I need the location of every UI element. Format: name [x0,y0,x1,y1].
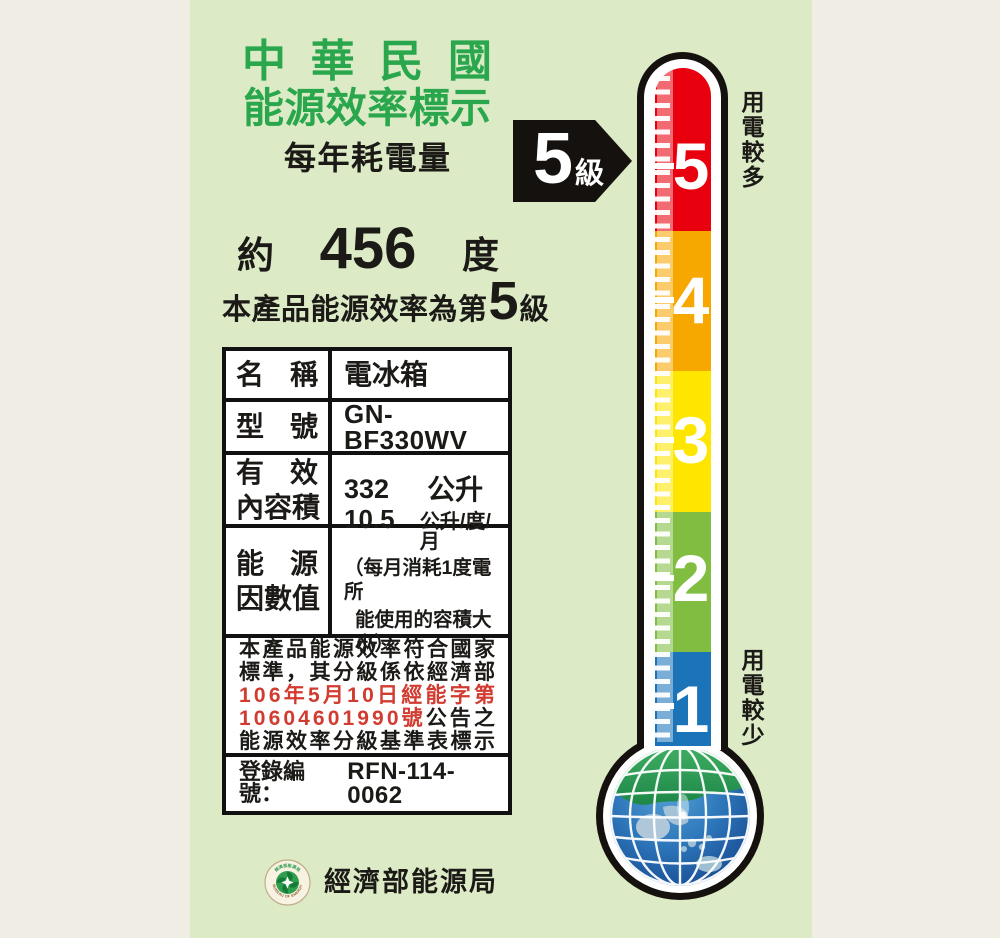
table-row-model: 型號 GN-BF330WV [226,398,508,451]
bureau-of-energy-seal-icon: 經濟部能源局 BUREAU OF ENERGY [264,859,311,906]
energy-factor-note-line1: （每月消耗1度電所 [344,556,508,604]
grade-arrow-number: 5 [533,120,573,198]
row-name-label-cell: 名稱 [226,351,332,398]
row-model-label-cell: 型號 [226,402,332,451]
consumption-value: 456 [320,220,417,278]
row-model-label: 型號 [236,409,318,444]
energy-factor-line: 10.5 公升/度/月 [344,506,508,552]
registration-label: 登錄編號： [239,761,347,805]
row-factor-label-line2: 因數值 [236,581,318,616]
energy-efficiency-label: 中華民國 能源效率標示 每年耗電量 約 456 度 本產品能源效率為第 5 級 … [0,0,1000,938]
notice-line-5: 能源效率分級基準表標示 [239,730,495,753]
table-row-name: 名稱 電冰箱 [226,351,508,398]
label-title-line2: 能源效率標示 [243,88,491,129]
annual-consumption-value-row: 約 456 度 [237,220,499,278]
row-name-value-cell: 電冰箱 [332,351,508,398]
volume-unit: 公升 [427,476,483,504]
table-row-notice: 本產品能源效率符合國家 標準，其分級係依經濟部 106年5月10日經能字第 10… [226,634,508,753]
product-name: 電冰箱 [344,361,428,389]
grade-statement-before: 本產品能源效率為第 [222,296,488,325]
agency-name: 經濟部能源局 [324,869,498,896]
row-factor-label-cell: 能源 因數值 [226,528,332,634]
energy-factor-unit: 公升/度/月 [420,512,508,552]
consumption-prefix: 約 [237,237,274,274]
label-title-line1: 中華民國 [242,40,492,84]
grade-number-3: 3 [664,407,718,473]
grade-arrow-unit: 級 [575,160,604,189]
annual-consumption-heading: 每年耗電量 [284,142,450,174]
registration-cell: 登錄編號： RFN-114-0062 [226,760,508,808]
grade-statement: 本產品能源效率為第 5 級 [222,274,549,328]
row-volume-label-line2: 內容積 [236,490,318,525]
consumption-unit: 度 [462,237,499,274]
notice-line-3: 106年5月10日經能字第 [239,684,495,707]
registration-number: RFN-114-0062 [347,760,508,808]
grade-number-5: 5 [664,133,718,199]
grade-number-1: 1 [664,676,718,742]
table-row-energy-factor: 能源 因數值 10.5 公升/度/月 （每月消耗1度電所 能使用的容積大小） [226,524,508,634]
notice-paragraph: 本產品能源效率符合國家 標準，其分級係依經濟部 106年5月10日經能字第 10… [226,638,508,753]
grade-number-4: 4 [664,267,718,333]
row-factor-label-line1: 能源 [236,546,318,581]
grade-statement-after: 級 [520,296,550,325]
earth-globe-bulb-icon [595,731,765,901]
row-factor-value-cell: 10.5 公升/度/月 （每月消耗1度電所 能使用的容積大小） [332,528,508,634]
table-row-registration: 登錄編號： RFN-114-0062 [226,753,508,811]
row-name-label: 名稱 [236,357,318,392]
row-volume-label-cell: 有效 內容積 [226,455,332,524]
row-volume-label-line1: 有效 [236,455,318,490]
model-number: GN-BF330WV [344,401,508,453]
notice-line-2: 標準，其分級係依經濟部 [239,661,495,684]
row-model-value-cell: GN-BF330WV [332,402,508,451]
notice-line-1: 本產品能源效率符合國家 [239,638,495,661]
notice-line-4: 10604601990號公告之 [239,707,495,730]
spec-table: 名稱 電冰箱 型號 GN-BF330WV 有效 內容積 332 公升 [222,347,512,815]
energy-factor-value: 10.5 [344,506,395,532]
uses-more-power-label: 用電較多 [739,90,762,190]
grade-statement-grade: 5 [489,274,519,328]
bureau-row: 經濟部能源局 BUREAU OF ENERGY 經濟部能源局 [264,859,498,906]
grade-number-2: 2 [664,545,718,611]
volume-value: 332 [344,476,389,503]
